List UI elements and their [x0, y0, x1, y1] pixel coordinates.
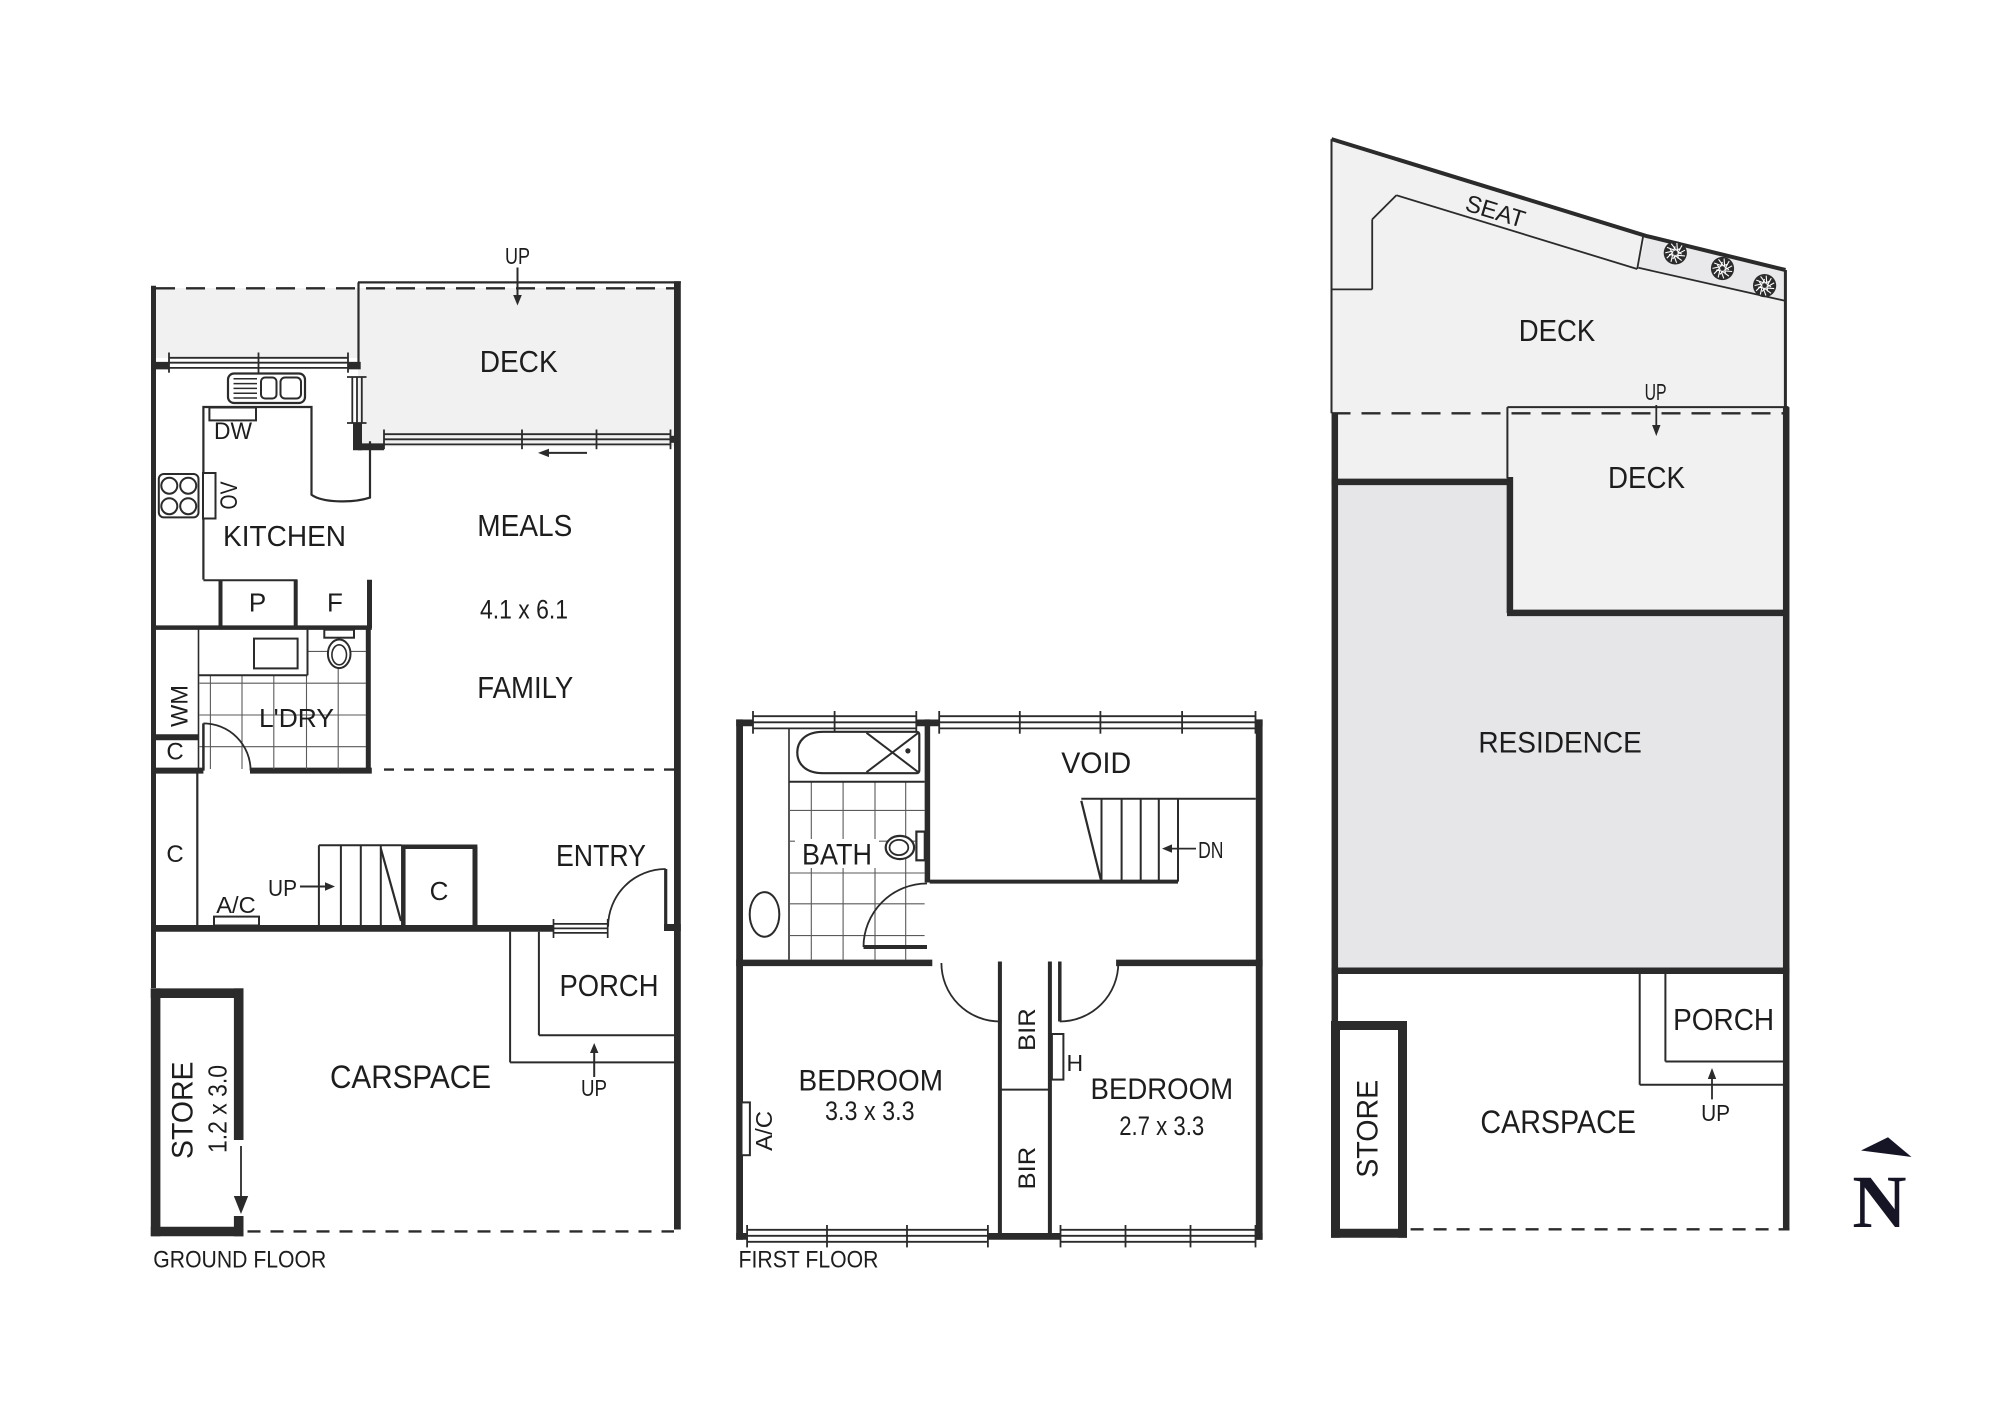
svg-text:N: N — [1852, 1161, 1906, 1244]
svg-text:1.2 x 3.0: 1.2 x 3.0 — [203, 1065, 233, 1153]
svg-text:UP: UP — [505, 243, 530, 269]
svg-text:WM: WM — [167, 685, 194, 727]
svg-text:BEDROOM: BEDROOM — [1091, 1073, 1234, 1106]
svg-text:FIRST FLOOR: FIRST FLOOR — [739, 1247, 879, 1274]
svg-text:RESIDENCE: RESIDENCE — [1478, 727, 1642, 760]
svg-text:A/C: A/C — [751, 1111, 777, 1151]
svg-text:4.1 x 6.1: 4.1 x 6.1 — [480, 595, 568, 625]
svg-text:DW: DW — [214, 418, 252, 445]
svg-text:UP: UP — [1701, 1100, 1730, 1126]
svg-text:2.7 x 3.3: 2.7 x 3.3 — [1119, 1111, 1204, 1141]
svg-text:DECK: DECK — [480, 344, 558, 379]
svg-text:BEDROOM: BEDROOM — [799, 1065, 944, 1098]
svg-text:UP: UP — [1645, 379, 1667, 405]
svg-text:GROUND FLOOR: GROUND FLOOR — [153, 1246, 326, 1273]
svg-text:P: P — [249, 588, 266, 618]
svg-text:CARSPACE: CARSPACE — [1480, 1104, 1636, 1140]
svg-text:FAMILY: FAMILY — [477, 670, 573, 705]
svg-text:DECK: DECK — [1608, 460, 1685, 495]
svg-text:C: C — [430, 876, 449, 906]
svg-text:A/C: A/C — [216, 892, 256, 918]
svg-text:UP: UP — [581, 1075, 607, 1101]
svg-text:BIR: BIR — [1014, 1147, 1041, 1190]
svg-text:F: F — [327, 588, 343, 618]
svg-text:BIR: BIR — [1014, 1008, 1041, 1051]
svg-text:BATH: BATH — [802, 839, 872, 872]
svg-text:VOID: VOID — [1061, 747, 1131, 780]
svg-text:3.3 x 3.3: 3.3 x 3.3 — [825, 1096, 915, 1126]
svg-text:ENTRY: ENTRY — [556, 838, 646, 873]
svg-text:OV: OV — [216, 482, 243, 510]
svg-text:PORCH: PORCH — [1673, 1003, 1774, 1037]
svg-text:KITCHEN: KITCHEN — [223, 521, 346, 553]
svg-text:DECK: DECK — [1519, 313, 1596, 348]
svg-text:C: C — [166, 841, 183, 868]
svg-text:L'DRY: L'DRY — [259, 703, 334, 733]
svg-text:UP: UP — [268, 875, 297, 901]
svg-text:CARSPACE: CARSPACE — [330, 1059, 491, 1095]
svg-text:STORE: STORE — [1352, 1080, 1385, 1178]
svg-text:H: H — [1066, 1050, 1083, 1076]
svg-text:STORE: STORE — [167, 1062, 200, 1160]
svg-text:C: C — [166, 739, 183, 766]
svg-text:MEALS: MEALS — [477, 508, 572, 543]
svg-text:DN: DN — [1198, 837, 1223, 863]
svg-text:PORCH: PORCH — [560, 969, 659, 1003]
